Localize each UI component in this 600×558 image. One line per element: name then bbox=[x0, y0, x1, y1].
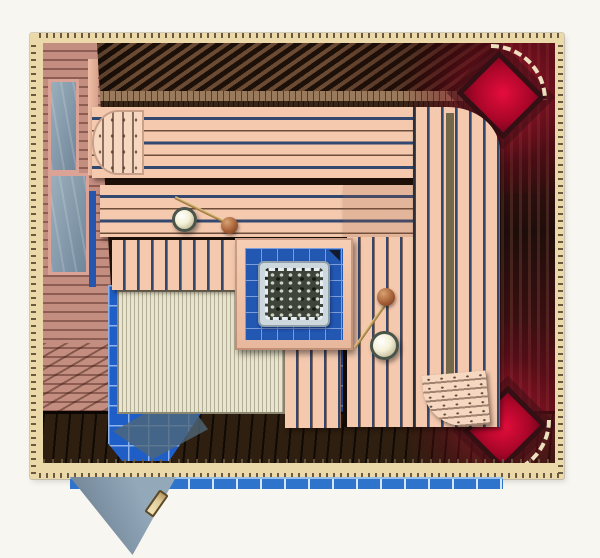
left-wall-window-upper bbox=[48, 79, 79, 173]
front-step-bench bbox=[112, 240, 235, 290]
water-bucket-right bbox=[370, 331, 399, 360]
right-shelf-bench bbox=[343, 185, 413, 237]
sauna-top-view-rendering bbox=[0, 0, 600, 558]
window-blue-trim bbox=[89, 191, 96, 287]
frame-notches-top bbox=[34, 33, 560, 38]
upper-bench-headrest bbox=[92, 110, 144, 175]
sauna-room-interior bbox=[43, 43, 555, 463]
frame-notches-inner-bottom bbox=[43, 459, 555, 463]
water-bucket-upper bbox=[172, 207, 197, 232]
left-wall-window-lower bbox=[48, 173, 89, 275]
bench-boards-below-heater bbox=[285, 340, 341, 428]
heater-stones bbox=[265, 268, 323, 320]
ladle-knob-upper bbox=[221, 217, 238, 234]
frame-notches-right bbox=[558, 40, 563, 474]
ladle-knob-right bbox=[377, 288, 395, 306]
frame-notches-left bbox=[31, 40, 36, 474]
